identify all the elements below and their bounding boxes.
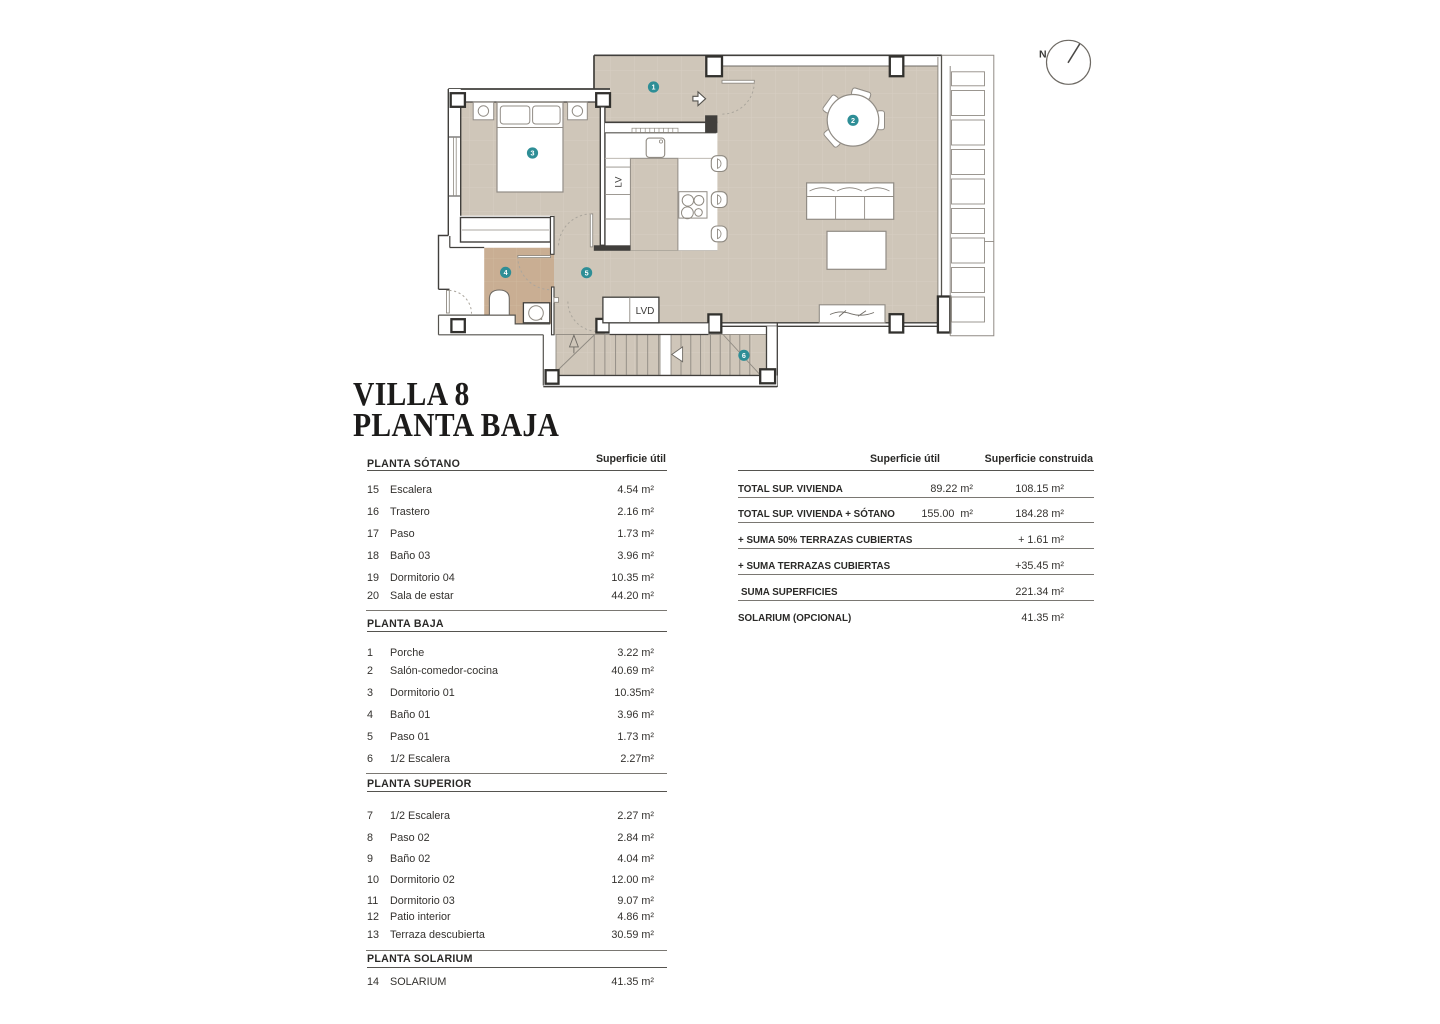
- svg-text:1: 1: [652, 83, 656, 92]
- svg-text:6: 6: [742, 351, 746, 360]
- svg-text:LVD: LVD: [636, 306, 655, 317]
- svg-text:N: N: [1039, 49, 1047, 61]
- svg-text:3: 3: [531, 149, 535, 158]
- svg-text:4: 4: [504, 268, 508, 277]
- svg-text:2: 2: [851, 116, 855, 125]
- svg-text:LV: LV: [614, 176, 625, 188]
- svg-text:5: 5: [585, 268, 589, 277]
